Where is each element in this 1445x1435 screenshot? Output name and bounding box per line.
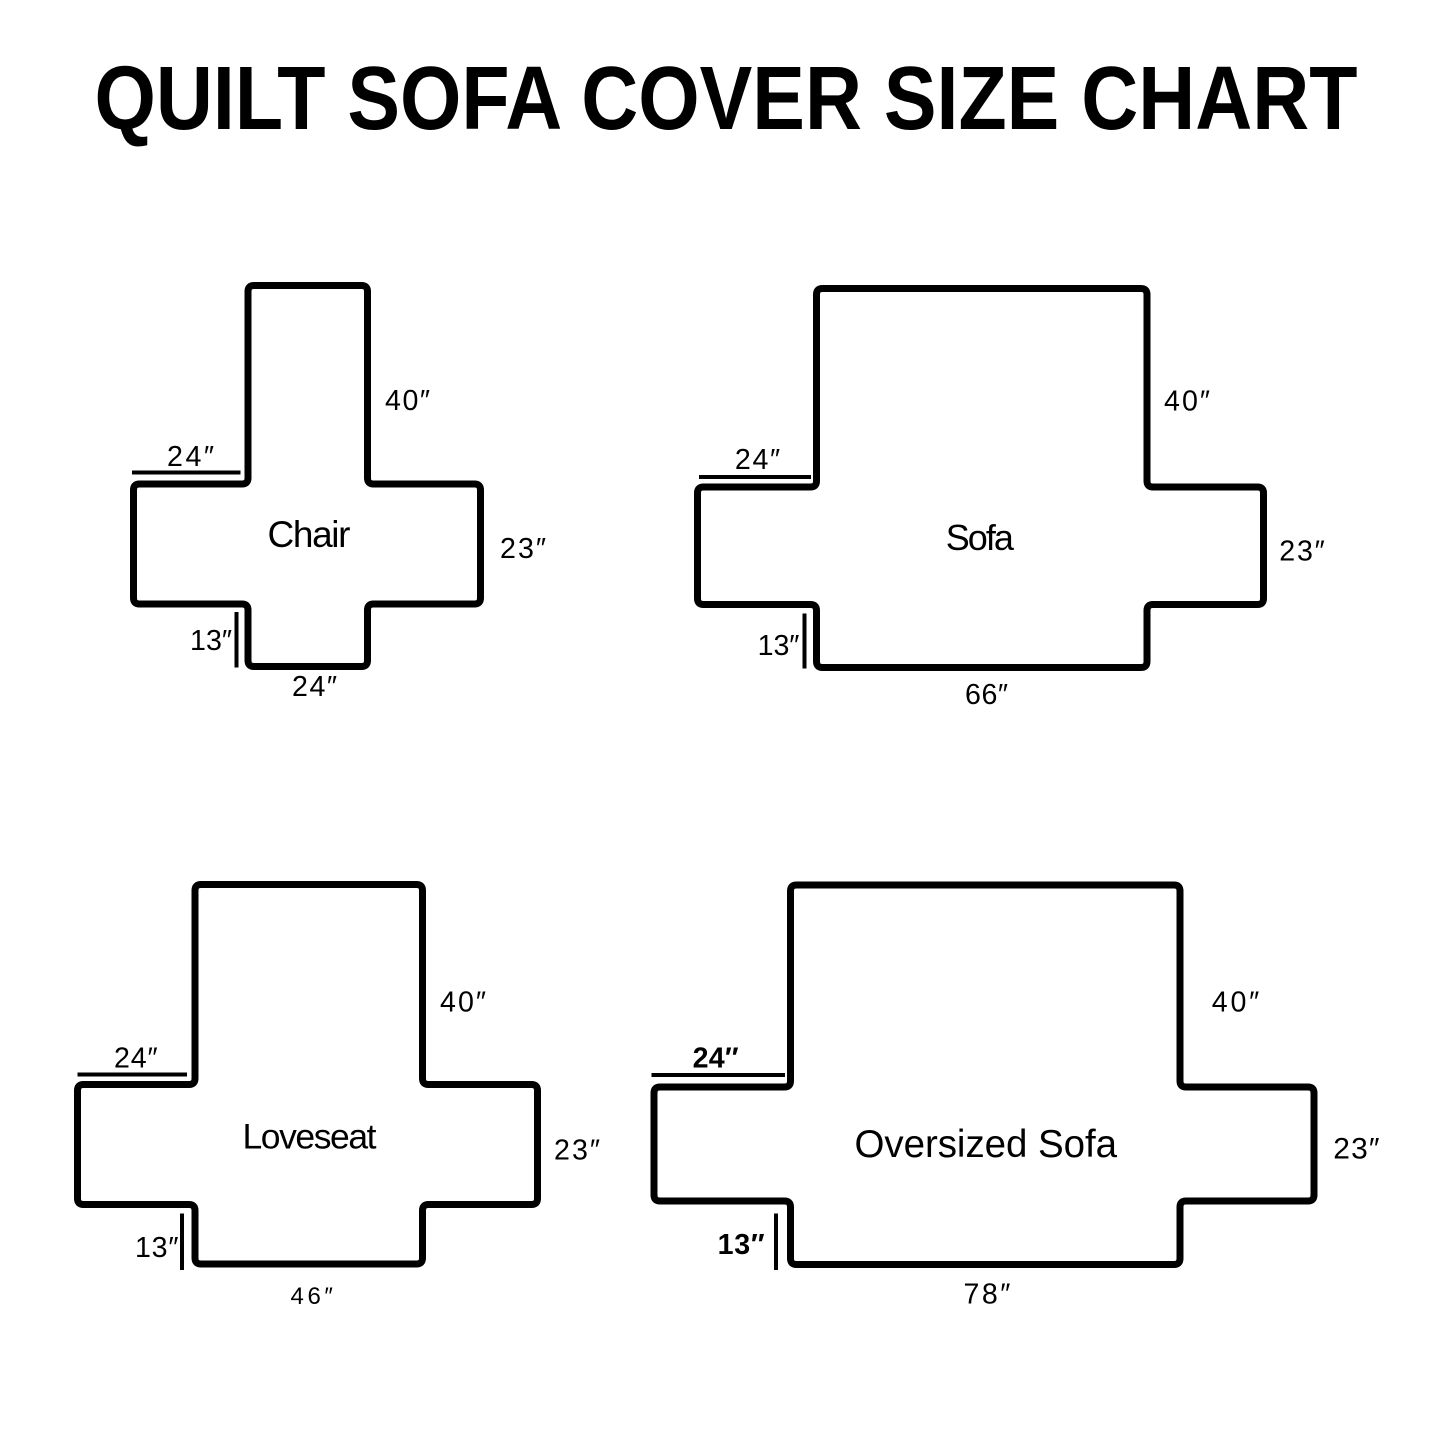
svg-text:Oversized Sofa: Oversized Sofa [855,1123,1118,1166]
svg-text:Loveseat: Loveseat [243,1117,377,1157]
svg-text:23″: 23″ [1333,1133,1380,1166]
svg-text:78″: 78″ [963,1279,1010,1311]
svg-text:46″: 46″ [291,1283,334,1310]
svg-text:24″: 24″ [167,441,214,473]
svg-text:24″: 24″ [114,1043,158,1075]
svg-text:40″: 40″ [440,987,486,1019]
svg-text:24″: 24″ [292,671,337,703]
svg-text:13″: 13″ [190,625,232,657]
svg-text:24″: 24″ [735,444,780,476]
svg-text:40″: 40″ [1164,386,1210,418]
svg-text:23″: 23″ [1279,536,1325,568]
svg-text:13″: 13″ [758,630,800,662]
svg-text:66″: 66″ [965,679,1008,711]
svg-text:24″: 24″ [693,1043,739,1075]
svg-text:Chair: Chair [268,514,351,555]
svg-text:QUILT SOFA COVER SIZE CHART: QUILT SOFA COVER SIZE CHART [95,49,1358,149]
svg-text:Sofa: Sofa [946,517,1015,558]
svg-text:13″: 13″ [135,1232,179,1264]
svg-text:23″: 23″ [500,533,546,565]
svg-text:40″: 40″ [385,385,430,417]
svg-text:40″: 40″ [1212,987,1260,1019]
svg-text:23″: 23″ [554,1135,600,1167]
svg-text:13″: 13″ [718,1229,765,1261]
